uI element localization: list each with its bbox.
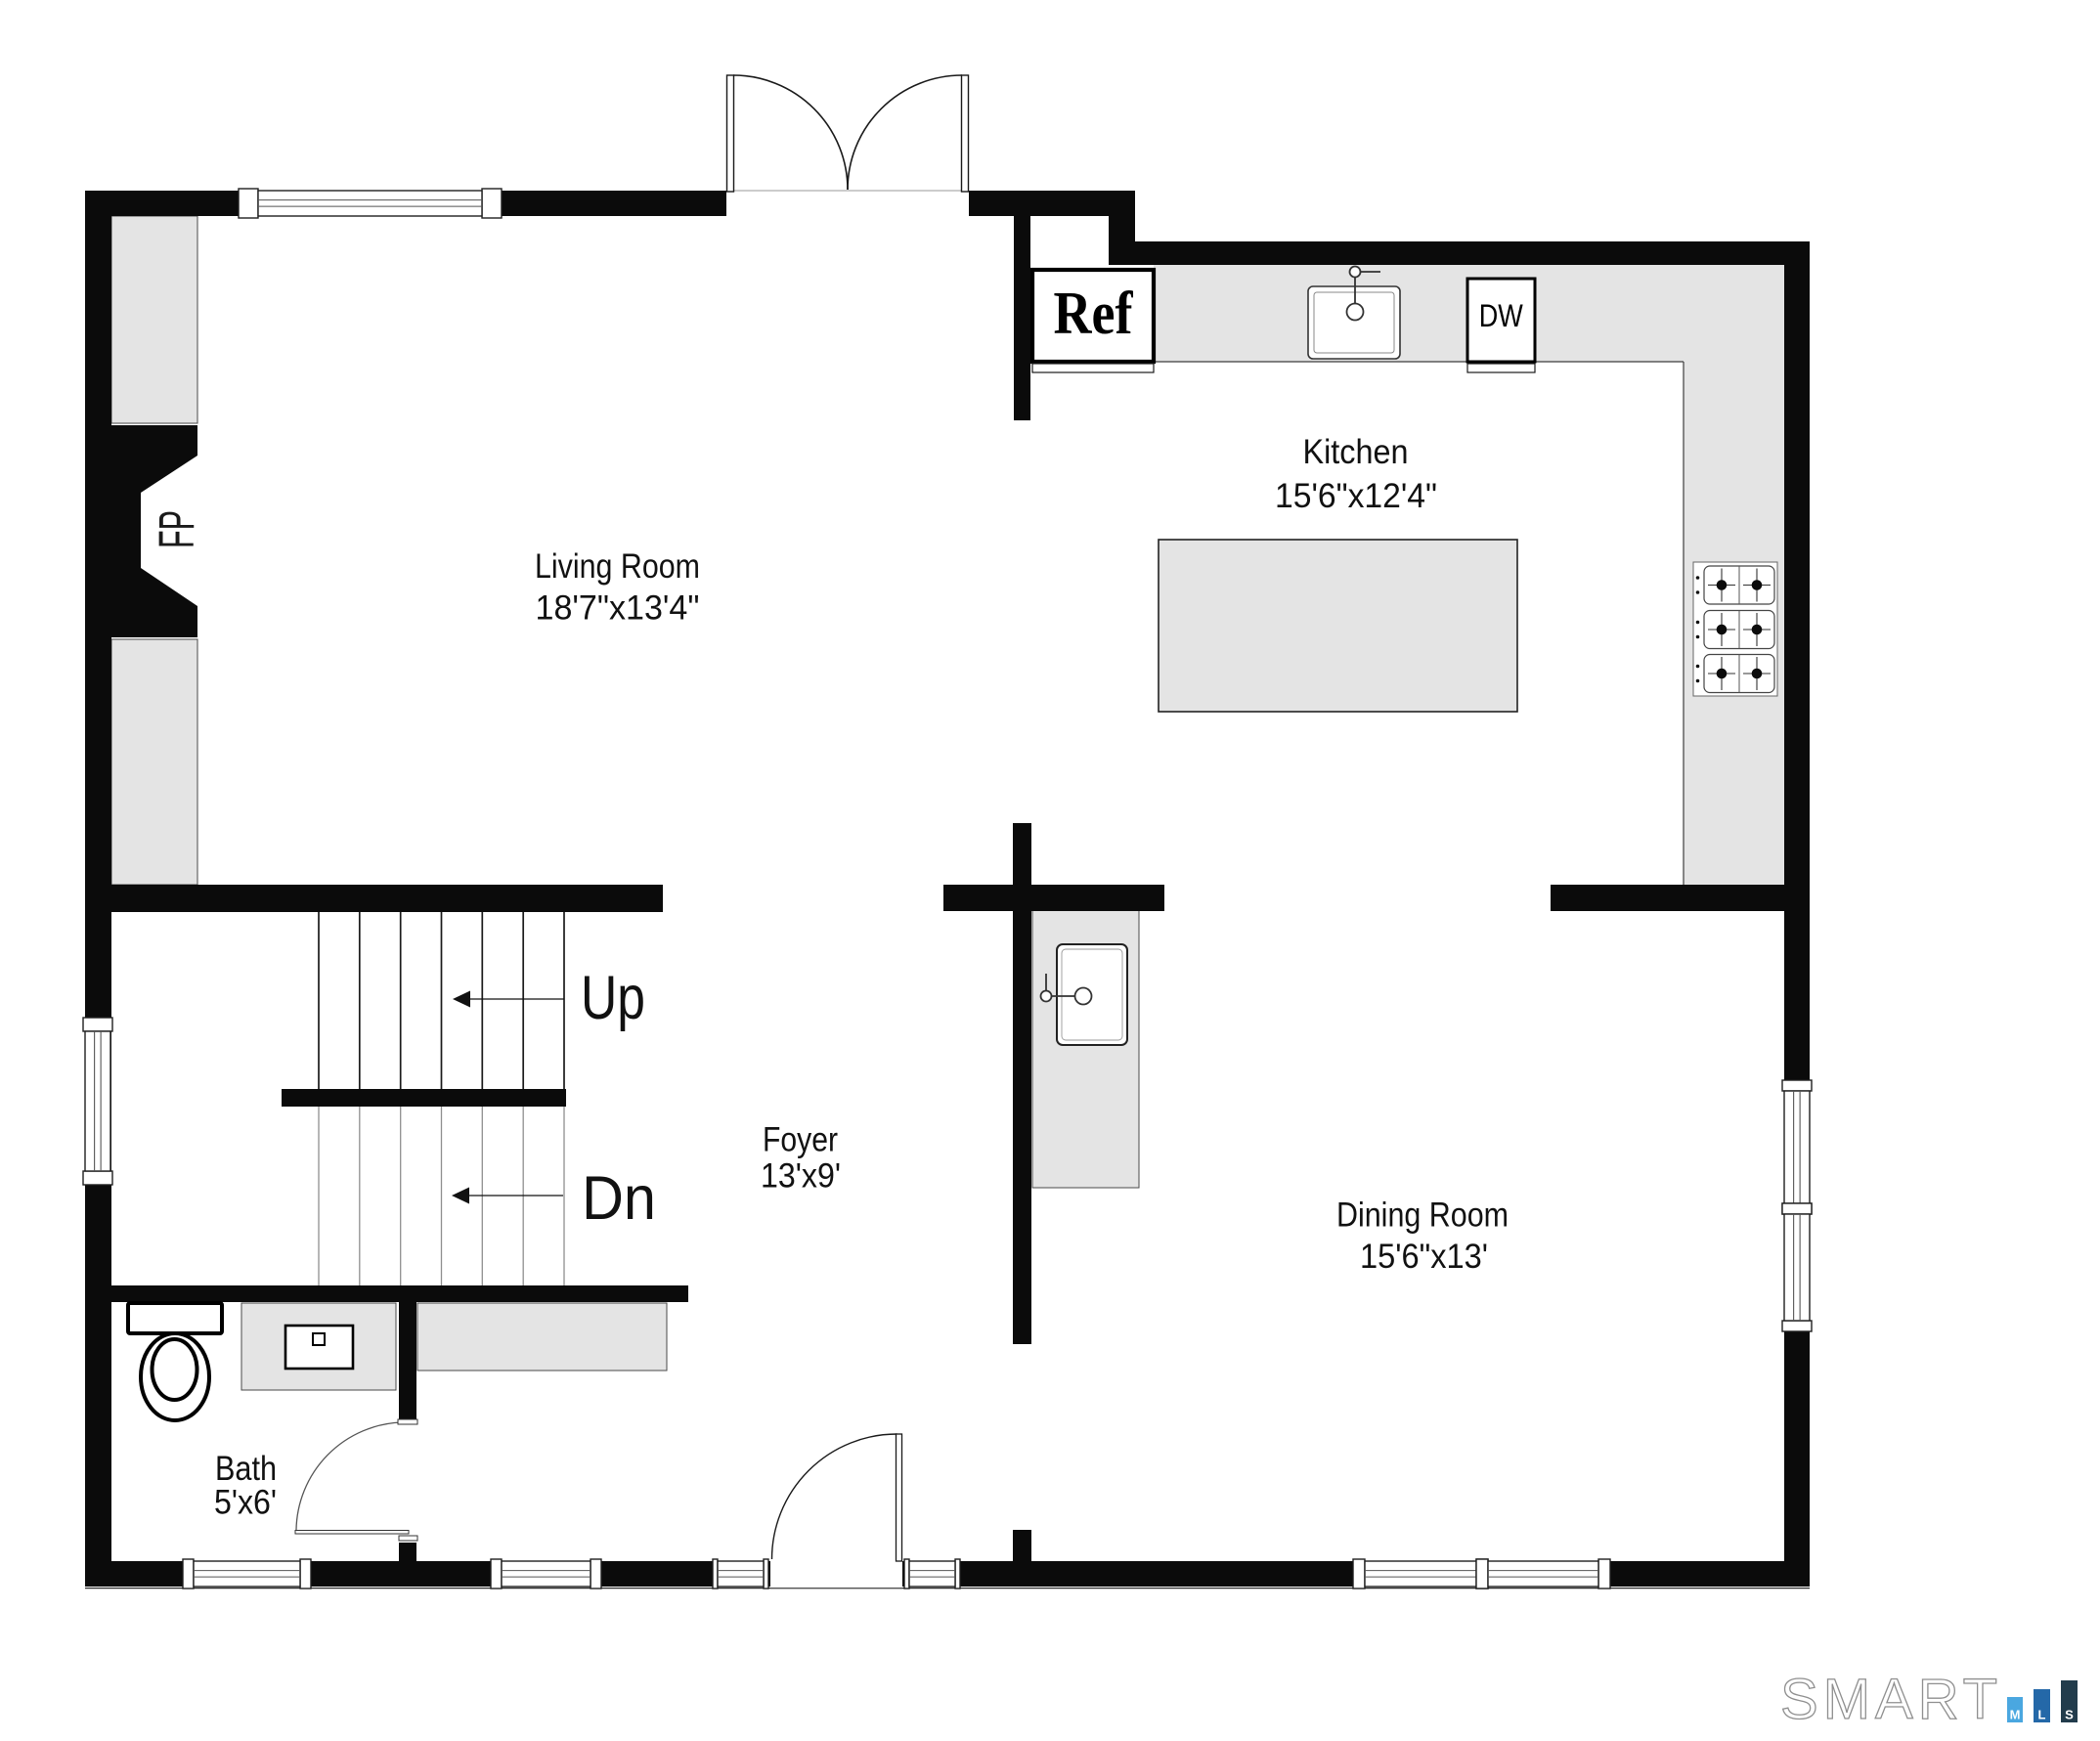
svg-text:15'6"x12'4": 15'6"x12'4" — [1275, 477, 1437, 515]
svg-text:Up: Up — [581, 964, 645, 1032]
svg-text:13'x9': 13'x9' — [761, 1157, 841, 1196]
svg-text:Bath: Bath — [215, 1450, 277, 1488]
svg-text:M: M — [2010, 1708, 2021, 1722]
svg-text:Dining Room: Dining Room — [1336, 1197, 1509, 1235]
svg-text:DW: DW — [1479, 298, 1524, 333]
svg-text:15'6"x13': 15'6"x13' — [1360, 1238, 1488, 1276]
svg-text:SMART: SMART — [1780, 1668, 1997, 1731]
svg-text:5'x6': 5'x6' — [214, 1484, 277, 1522]
svg-text:Foyer: Foyer — [763, 1121, 838, 1159]
svg-text:Ref: Ref — [1054, 281, 1134, 347]
svg-text:L: L — [2038, 1708, 2046, 1722]
svg-text:Living Room: Living Room — [535, 547, 700, 586]
svg-text:FP: FP — [149, 510, 204, 548]
svg-text:Dn: Dn — [582, 1164, 656, 1233]
svg-text:18'7"x13'4": 18'7"x13'4" — [536, 589, 700, 628]
svg-text:S: S — [2065, 1708, 2074, 1722]
svg-text:Kitchen: Kitchen — [1303, 433, 1409, 471]
